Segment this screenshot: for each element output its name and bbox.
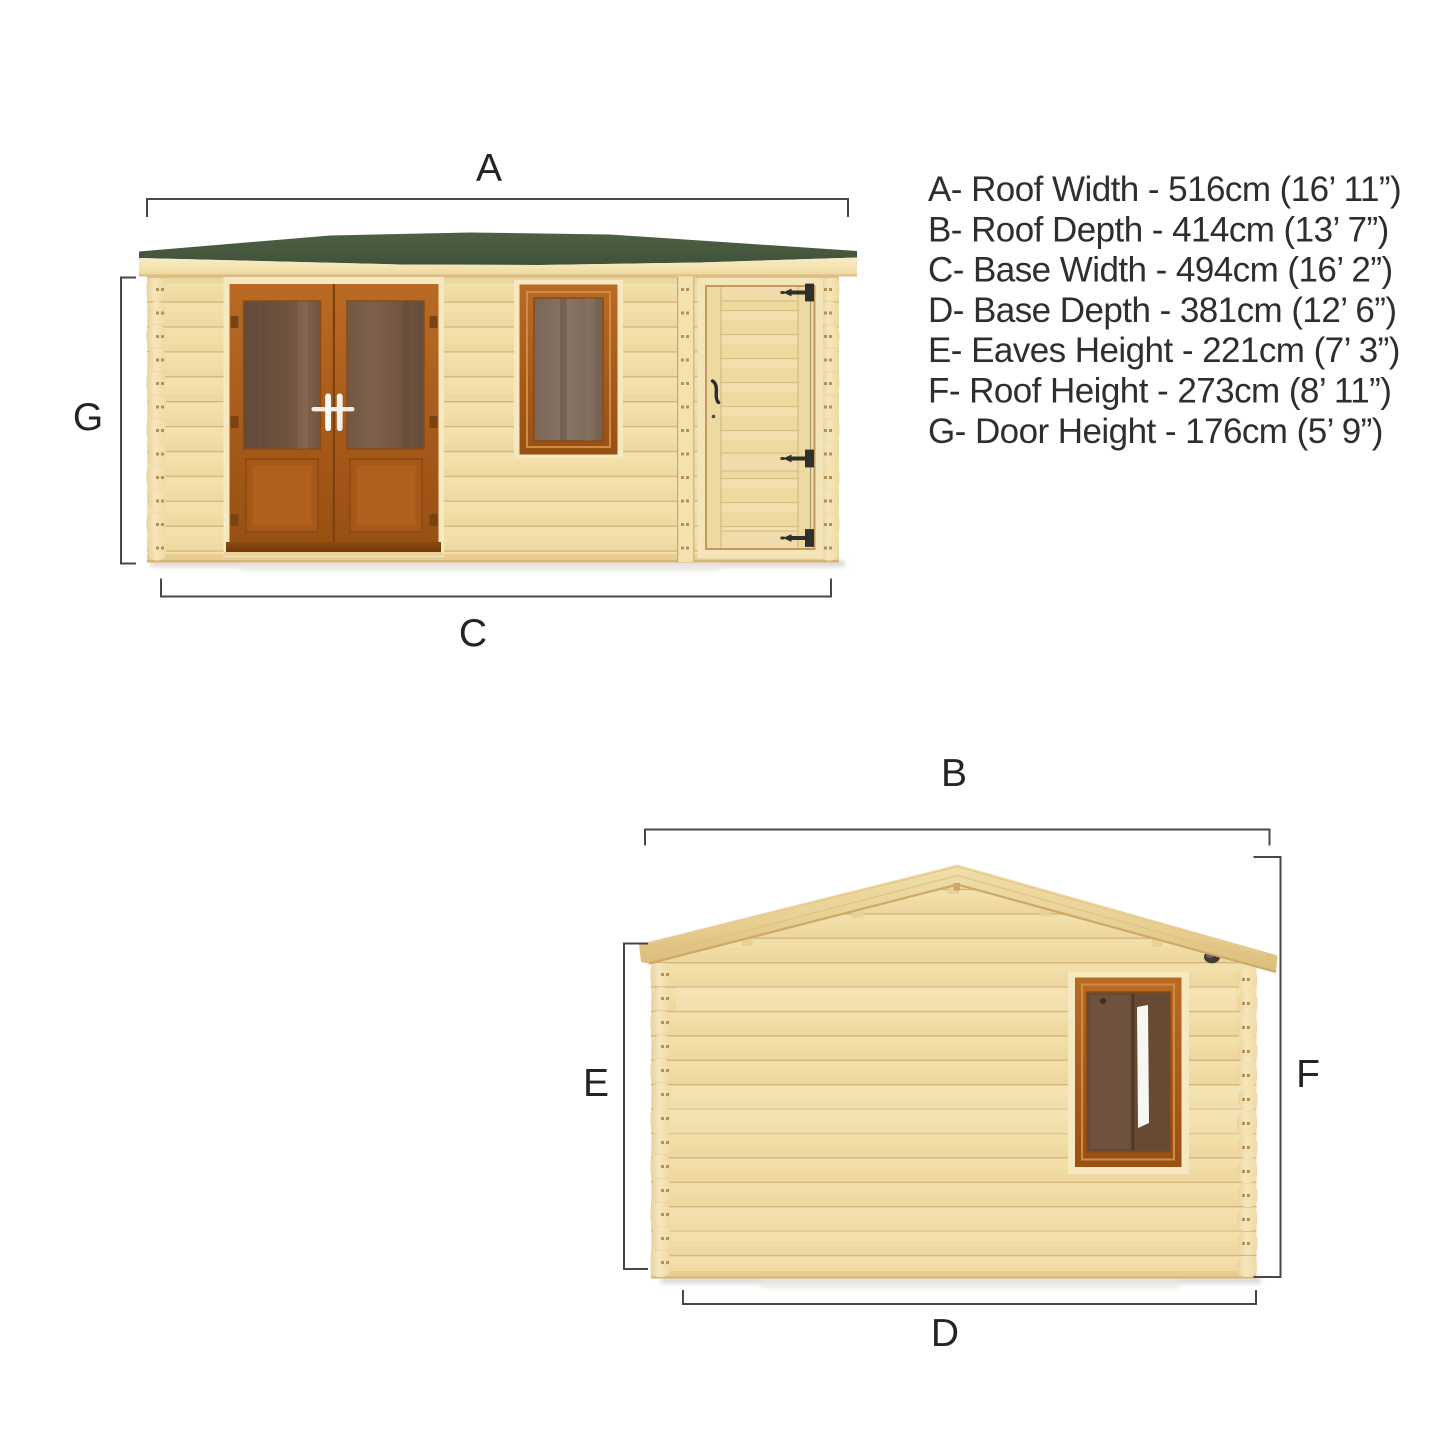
svg-text:A- Roof Width - 516cm (16’ 11”: A- Roof Width - 516cm (16’ 11”) xyxy=(928,170,1401,209)
svg-text:E- Eaves Height - 221cm (7’ 3”: E- Eaves Height - 221cm (7’ 3”) xyxy=(928,331,1400,370)
svg-text:F: F xyxy=(1296,1053,1320,1096)
svg-text:D- Base Depth - 381cm (12’ 6”): D- Base Depth - 381cm (12’ 6”) xyxy=(928,291,1397,330)
svg-text:G- Door Height - 176cm (5’ 9”): G- Door Height - 176cm (5’ 9”) xyxy=(928,412,1383,451)
svg-text:F- Roof Height - 273cm (8’ 11”: F- Roof Height - 273cm (8’ 11”) xyxy=(928,372,1391,411)
svg-text:D: D xyxy=(931,1312,959,1355)
svg-text:E: E xyxy=(583,1062,609,1105)
svg-text:C- Base Width - 494cm (16’ 2”): C- Base Width - 494cm (16’ 2”) xyxy=(928,251,1393,290)
svg-text:B- Roof Depth - 414cm (13’ 7”): B- Roof Depth - 414cm (13’ 7”) xyxy=(928,210,1389,249)
svg-text:G: G xyxy=(73,396,103,439)
svg-text:B: B xyxy=(941,752,967,795)
svg-text:A: A xyxy=(476,147,502,190)
svg-text:C: C xyxy=(459,612,487,655)
